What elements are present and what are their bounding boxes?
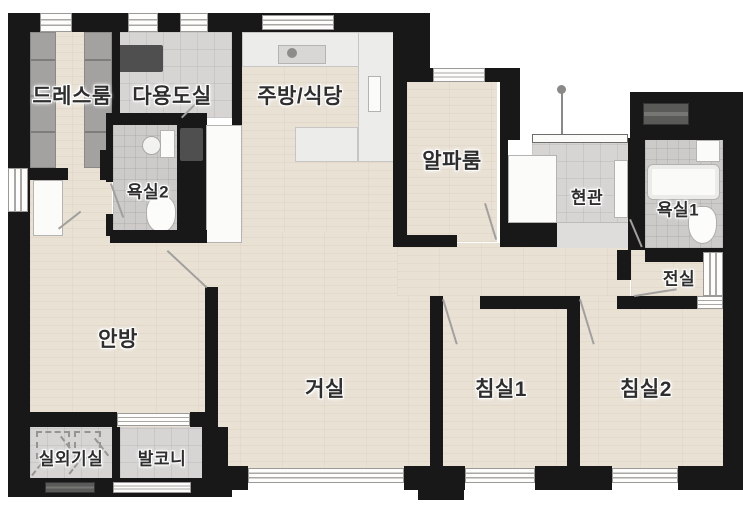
room-label-utility-room: 다용도실 xyxy=(132,80,211,110)
window xyxy=(8,168,28,212)
shoe-closet-right xyxy=(614,160,628,218)
wall xyxy=(404,466,465,490)
wall xyxy=(112,427,120,480)
kitchen-window xyxy=(262,15,334,30)
entrance-door-knob-icon xyxy=(557,85,566,94)
wall xyxy=(480,296,567,309)
utility-appliance xyxy=(115,45,163,72)
wall xyxy=(617,296,697,309)
wall xyxy=(100,150,113,180)
wall xyxy=(228,466,248,490)
wall xyxy=(190,412,218,427)
room-label-dress-room: 드레스룸 xyxy=(32,80,111,110)
wall xyxy=(393,235,457,247)
wall xyxy=(567,296,580,470)
wall xyxy=(110,230,207,243)
bathroom1-vanity xyxy=(696,140,720,162)
window xyxy=(40,13,72,32)
room-label-front-room: 전실 xyxy=(663,265,695,290)
room-label-balcony: 발코니 xyxy=(138,445,186,470)
bathroom1-frosted-window xyxy=(643,103,689,125)
shoe-closet-left xyxy=(508,155,557,223)
wall xyxy=(500,223,557,247)
wall xyxy=(30,168,68,180)
wall xyxy=(535,466,612,490)
wall xyxy=(500,68,520,140)
kitchen-appliance xyxy=(368,76,381,112)
kitchen-sink-drain-icon xyxy=(287,48,297,58)
wall xyxy=(8,13,30,497)
wall xyxy=(205,287,218,412)
window xyxy=(433,68,485,82)
floor-hallway xyxy=(397,243,630,296)
bedroom2-window xyxy=(612,468,678,483)
room-label-kitchen-dining: 주방/식당 xyxy=(257,80,343,110)
bedroom1-window xyxy=(465,468,535,483)
wall xyxy=(418,490,464,500)
wall xyxy=(393,32,407,247)
balcony-window xyxy=(113,482,191,493)
wall xyxy=(678,466,743,490)
wall xyxy=(112,32,120,115)
wall xyxy=(430,296,443,470)
kitchen-sink xyxy=(278,45,326,64)
room-label-living-room: 거실 xyxy=(305,373,345,403)
room-label-master-bedroom: 안방 xyxy=(98,323,138,353)
room-label-bathroom2: 욕실2 xyxy=(127,178,169,203)
wall xyxy=(723,92,743,490)
bathroom2-sink-icon xyxy=(142,136,161,155)
bathroom2-vanity xyxy=(160,130,175,158)
wall xyxy=(617,250,631,280)
room-label-bathroom1: 욕실1 xyxy=(657,196,699,221)
room-label-bedroom2: 침실2 xyxy=(620,373,672,403)
room-label-outdoor-unit-room: 실외기실 xyxy=(39,445,104,470)
room-label-alpha-room: 알파룸 xyxy=(422,145,481,175)
window xyxy=(180,13,208,32)
balcony-sliding-door xyxy=(117,413,190,426)
wall xyxy=(232,13,242,125)
floor-plan: 드레스룸 다용도실 주방/식당 알파룸 현관 욕실1 욕실2 전실 안방 거실 … xyxy=(0,0,743,512)
duct-shaft xyxy=(180,128,203,161)
living-room-window xyxy=(248,468,404,483)
front-room-window xyxy=(703,252,723,296)
entrance-door xyxy=(532,134,628,143)
window xyxy=(128,13,158,32)
wall xyxy=(106,113,207,125)
wall xyxy=(30,412,117,427)
room-label-bedroom1: 침실1 xyxy=(475,373,527,403)
wall xyxy=(202,427,228,480)
outdoor-unit-louver xyxy=(45,482,95,493)
window xyxy=(697,296,723,309)
pantry-closet xyxy=(206,125,242,243)
kitchen-island-counter xyxy=(295,127,358,162)
room-label-entrance: 현관 xyxy=(571,184,603,209)
